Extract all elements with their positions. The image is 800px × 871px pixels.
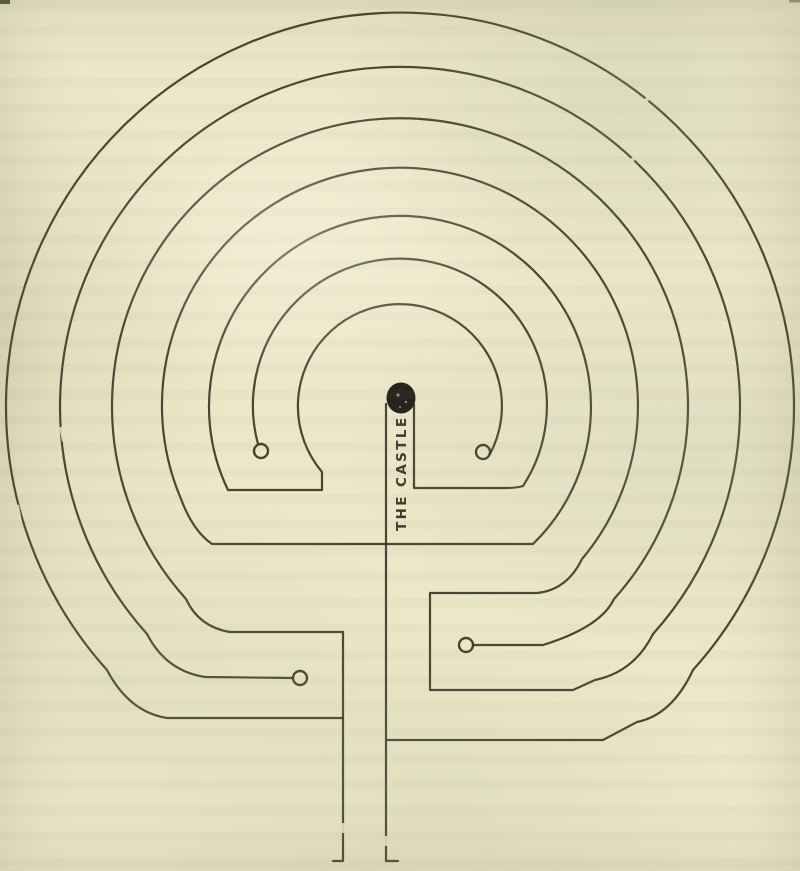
- dead-end-marker: [293, 671, 307, 685]
- maze-wall-spiral: [60, 67, 740, 690]
- scan-edge-marks: [0, 1, 800, 2]
- scanned-book-page: THE CASTLE: [0, 0, 800, 871]
- castle-label: THE CASTLE: [394, 415, 410, 531]
- castle-dot-speck: [405, 401, 407, 403]
- castle-dot-speck: [399, 406, 401, 408]
- dead-end-marker: [254, 444, 268, 458]
- castle-marker: [387, 383, 416, 414]
- print-gaps: [17, 89, 660, 846]
- labyrinth-diagram: THE CASTLE: [0, 0, 800, 871]
- castle-dot-speck: [396, 393, 399, 396]
- castle-dot-icon: [387, 383, 416, 414]
- maze-wall-outer-ring: [6, 13, 794, 740]
- dead-end-marker: [476, 445, 490, 459]
- dead-end-markers: [254, 444, 490, 685]
- dead-end-marker: [459, 638, 473, 652]
